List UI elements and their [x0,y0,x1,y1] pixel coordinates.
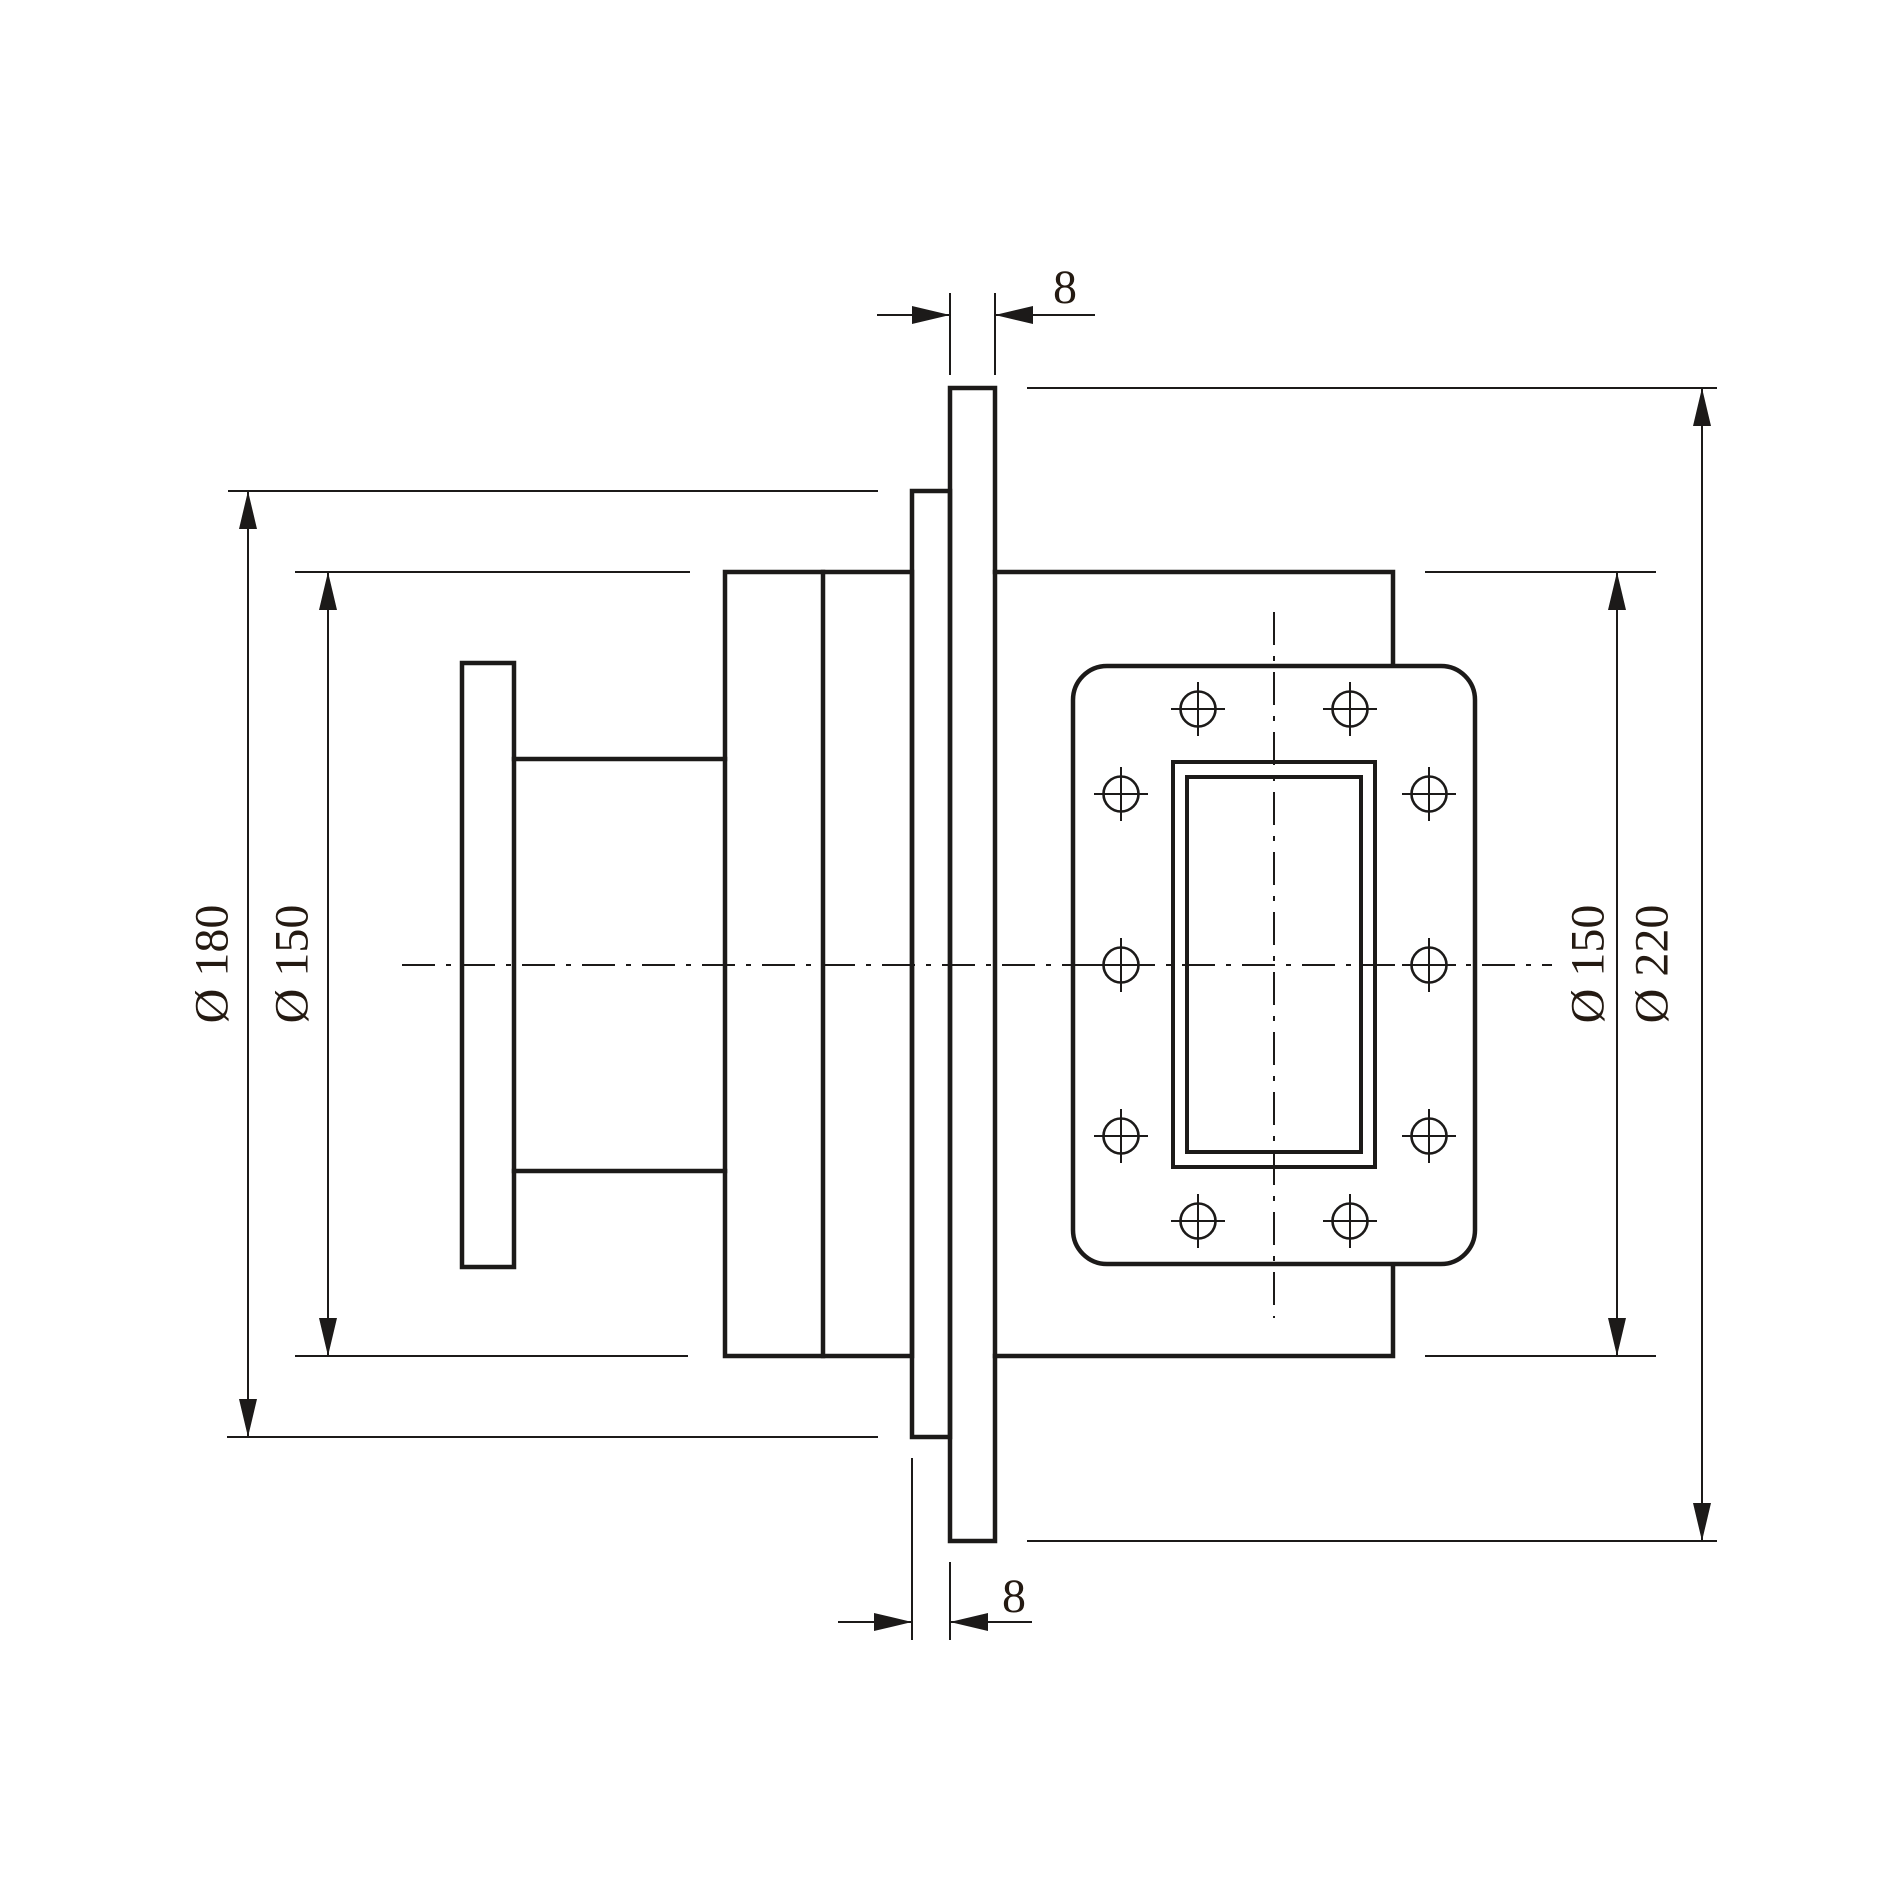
arrowhead-up [1608,572,1626,610]
dim-label-dia-150-right: Ø 150 [1562,905,1615,1024]
dim-label-dia-220: Ø 220 [1626,905,1679,1024]
arrowhead-up [239,491,257,529]
dim-label-dia-150-left: Ø 150 [266,905,319,1024]
arrowhead-left [995,306,1033,324]
flange-assembly-drawing: Ø 180 Ø 150 Ø 150 Ø 220 [0,0,1900,1900]
arrowhead-up [1693,388,1711,426]
arrowhead-right [912,306,950,324]
dim-label-8-top: 8 [1053,261,1077,314]
dim-label-8-bottom: 8 [1002,1570,1026,1623]
arrowhead-up [319,572,337,610]
arrowhead-down [1608,1318,1626,1356]
arrowhead-down [239,1399,257,1437]
arrowhead-right [874,1613,912,1631]
dim-label-dia-180: Ø 180 [186,905,239,1024]
dim-thickness-8-bottom: 8 [838,1458,1032,1640]
technical-drawing-canvas: Ø 180 Ø 150 Ø 150 Ø 220 [0,0,1900,1900]
dim-thickness-8-top: 8 [877,261,1095,375]
arrowhead-down [1693,1503,1711,1541]
arrowhead-left [950,1613,988,1631]
arrowhead-down [319,1318,337,1356]
